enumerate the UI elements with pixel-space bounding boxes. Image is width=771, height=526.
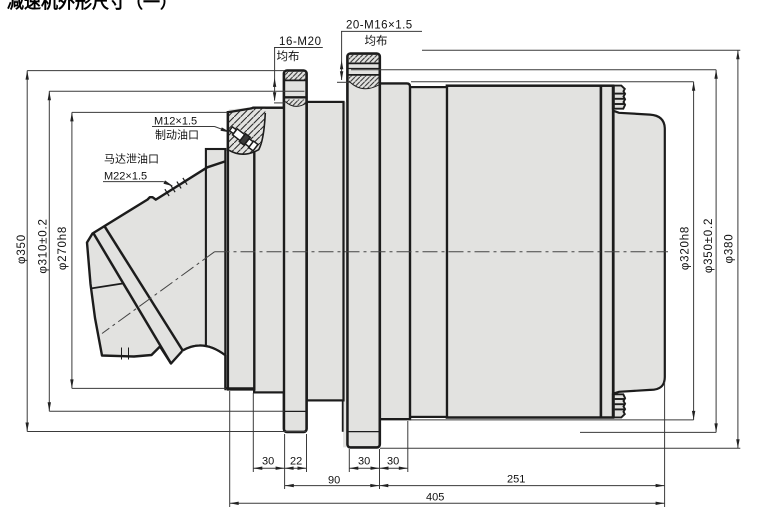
svg-text:φ320h8: φ320h8: [680, 226, 692, 270]
svg-text:30: 30: [262, 456, 274, 468]
svg-text:马达泄油口: 马达泄油口: [104, 152, 159, 166]
svg-text:30: 30: [358, 456, 370, 468]
svg-text:20-M16×1.5: 20-M16×1.5: [346, 20, 413, 32]
svg-text:制动油口: 制动油口: [155, 128, 199, 142]
svg-text:251: 251: [507, 474, 525, 486]
svg-text:φ380: φ380: [724, 234, 736, 264]
svg-text:均布: 均布: [365, 35, 388, 48]
svg-text:405: 405: [426, 492, 444, 504]
svg-text:φ270h8: φ270h8: [57, 226, 69, 270]
svg-text:φ310±0.2: φ310±0.2: [38, 218, 50, 273]
svg-text:90: 90: [328, 475, 340, 487]
svg-text:M12×1.5: M12×1.5: [154, 116, 197, 128]
svg-text:22: 22: [290, 456, 302, 468]
svg-text:16-M20: 16-M20: [279, 36, 322, 48]
svg-text:均布: 均布: [277, 50, 300, 63]
svg-text:φ350±0.2: φ350±0.2: [703, 218, 715, 273]
svg-text:M22×1.5: M22×1.5: [104, 171, 147, 183]
svg-text:30: 30: [387, 456, 399, 468]
svg-text:φ350: φ350: [16, 234, 28, 264]
